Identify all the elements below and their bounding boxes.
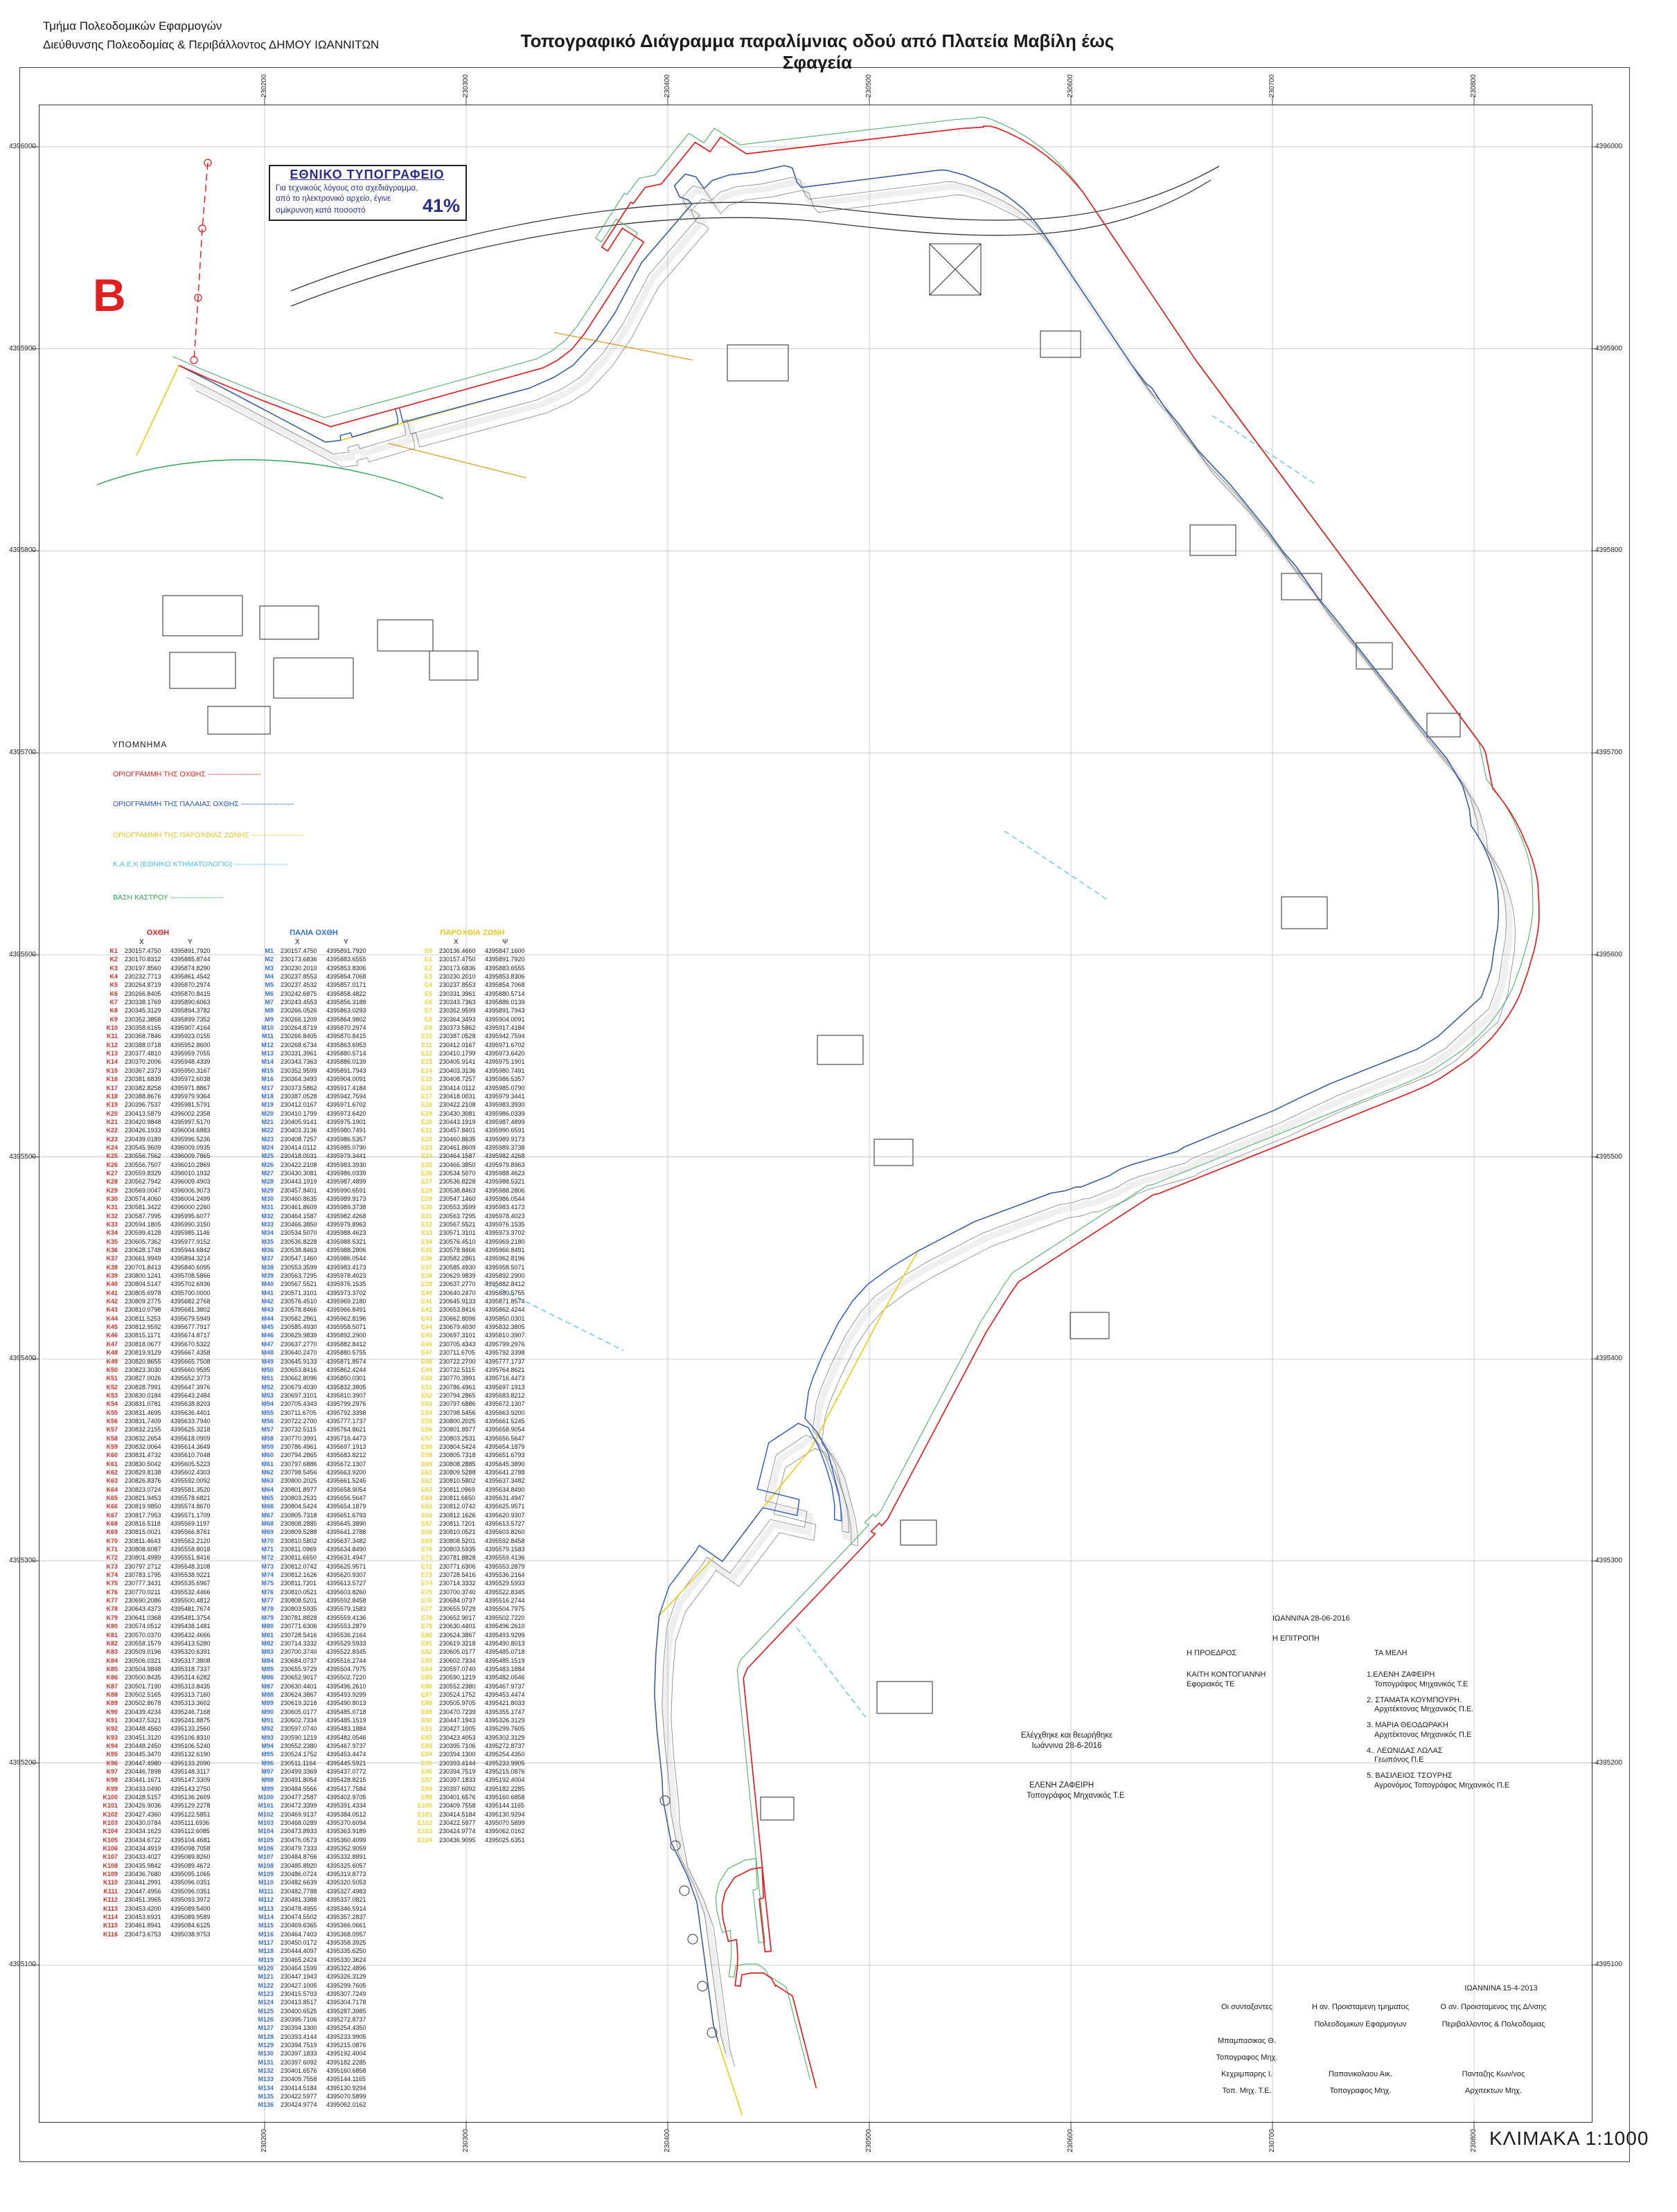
point-x: 230786.4961 [439,1383,482,1391]
point-x: 230571.3101 [439,1229,482,1237]
point-id: M37 [255,1254,274,1263]
table-row: M21230405.91414395975.1901 [255,1118,380,1126]
table-row: Ε78230652.90174395502.7220 [414,1614,538,1622]
point-id: Ε85 [414,1673,432,1682]
point-y: 4395254.4350 [485,1750,531,1758]
table-row: M107230484.87664395332.8891 [255,1853,380,1861]
reduction-note-title: ΕΘΝΙΚΟ ΤΥΠΟΓΡΑΦΕΙΟ [276,168,459,182]
point-x: 230430.3081 [439,1109,482,1118]
point-y: 4395625.9571 [485,1502,531,1510]
point-x: 230816.5118 [125,1519,168,1528]
table-row: Ε10230387.05284395942.7594 [414,1032,538,1040]
table-row: K38230701.84134395840.6095 [99,1263,224,1272]
table-row: K31230581.34224396000.2260 [99,1203,224,1211]
point-x: 230643.4373 [125,1605,168,1613]
point-y: 4395890.6063 [170,998,216,1006]
point-x: 230728.5416 [281,1631,323,1639]
table-row: Ε17230418.00314395979.3441 [414,1092,538,1100]
point-x: 230804.5424 [439,1443,482,1451]
axis-tick-label-bottom: 230500 [865,2120,873,2161]
point-id: M39 [255,1272,274,1280]
legend-item: ΒΑΣΗ ΚΑΣΤΡΟΥ ---------------------- [113,893,223,902]
point-x: 230506.0321 [125,1657,168,1665]
point-y: 4395096.0351 [170,1878,216,1887]
table-row: M14230343.73634395886.0139 [255,1058,380,1066]
point-x: 230602.7334 [281,1716,323,1724]
point-x: 230331.3961 [281,1049,323,1058]
point-x: 230827.0026 [125,1374,168,1382]
point-id: M77 [255,1596,274,1605]
table-row: M62230798.54564395663.9200 [255,1468,380,1477]
point-x: 230641.0368 [125,1614,168,1622]
point-x: 230826.8376 [125,1477,168,1485]
table-row: K79230641.03684395481.3754 [99,1614,224,1622]
point-y: 4395985.0790 [485,1084,531,1092]
point-id: M14 [255,1058,274,1066]
point-y: 4395504.7975 [485,1605,531,1613]
table-row: Ε77230655.97294395504.7975 [414,1605,538,1613]
table-row: K86230500.84354395314.6282 [99,1673,224,1682]
point-y: 4395995.6077 [170,1212,216,1220]
point-y: 4395950.3167 [170,1067,216,1075]
table-row: M92230597.07404395483.1884 [255,1724,380,1733]
point-y: 4395862.4244 [485,1305,531,1314]
table-row: Ε39230637.27704395882.8412 [414,1280,538,1288]
point-id: K33 [99,1220,118,1229]
table-row: Ε94230394.13004395254.4350 [414,1750,538,1758]
point-y: 4395856.3188 [326,998,372,1006]
point-y: 4395861.4542 [170,972,216,981]
table-row: Ε19230430.30814395986.0339 [414,1109,538,1118]
axis-tick-label-left: 4395400 [1,1355,36,1362]
legend-line-sample: ---------------------- [249,831,305,839]
legend-title: ΥΠΟΜΝΗΜΑ [112,740,167,749]
point-id: M63 [255,1477,274,1485]
table-row: M123230415.57034395307.7249 [255,1990,380,1998]
axis-tick-label-top: 230600 [1067,65,1075,107]
table-row: M44230582.28614395962.8196 [255,1314,380,1323]
point-y: 4395880.5755 [326,1348,372,1357]
point-y: 4395663.9200 [485,1409,531,1417]
point-x: 230811.7201 [439,1519,482,1528]
table-row: K4230232.77134395861.4542 [99,972,224,981]
point-id: K58 [99,1434,118,1443]
table-row: Ε103230424.97744395062.0162 [414,1827,538,1835]
point-id: M118 [255,1947,274,1955]
point-x: 230422.5977 [439,1819,482,1827]
point-id: M92 [255,1724,274,1733]
point-id: M34 [255,1229,274,1237]
point-id: Ε43 [414,1314,432,1323]
point-id: Ε48 [414,1357,432,1366]
point-id: M99 [255,1785,274,1793]
point-x: 230474.5502 [281,1913,323,1921]
point-x: 230331.3961 [439,990,482,998]
point-y: 4395233.9905 [326,2033,372,2041]
point-y: 4395979.8963 [485,1161,531,1169]
table-row: M112230481.33884395337.0821 [255,1896,380,1904]
point-x: 230422.5977 [281,2092,323,2100]
point-y: 4395538.9221 [170,1571,216,1579]
table-row: Ε79230630.44014395496.2610 [414,1622,538,1630]
point-id: M36 [255,1246,274,1254]
point-x: 230414.5184 [281,2084,323,2092]
point-x: 230590.1219 [281,1733,323,1742]
table-row: M37230547.14604395986.0544 [255,1254,380,1263]
point-x: 230266.0526 [281,1006,323,1015]
point-y: 4395485.0718 [326,1708,372,1716]
point-y: 4395891.7920 [170,947,216,955]
point-x: 230427.1005 [439,1724,482,1733]
table-row: K43230810.07984395681.3802 [99,1305,224,1314]
point-id: Ε71 [414,1553,432,1562]
point-y: 4396006.9073 [170,1186,216,1195]
point-y: 4395093.3972 [170,1896,216,1904]
point-x: 230770.0211 [125,1588,168,1596]
point-x: 230547.1460 [281,1254,323,1263]
point-id: K30 [99,1195,118,1203]
point-id: K104 [99,1827,118,1835]
point-x: 230426.9036 [125,1801,168,1810]
point-y: 4395987.4899 [485,1118,531,1126]
point-x: 230232.7713 [125,972,168,981]
point-y: 4395625.9571 [326,1562,372,1571]
table-row: M12230268.67344395863.6953 [255,1041,380,1049]
table-row: Ε65230812.07424395625.9571 [414,1502,538,1510]
point-y: 4395357.2837 [326,1913,372,1921]
point-y: 4395631.4947 [326,1553,372,1562]
point-id: Ε75 [414,1588,432,1596]
point-id: Ε41 [414,1297,432,1305]
table-row: Ε83230602.73344395485.1519 [414,1657,538,1665]
table-row: K41230805.69784395700.0000 [99,1289,224,1297]
table-row: M75230811.72014395613.5727 [255,1579,380,1587]
point-id: M101 [255,1801,274,1810]
point-id: Ε62 [414,1477,432,1485]
point-y: 4395318.7337 [170,1665,216,1673]
point-x: 230830.5042 [125,1460,168,1468]
point-x: 230430.3081 [281,1169,323,1177]
point-x: 230812.1626 [281,1571,323,1579]
point-x: 230395.7106 [281,2015,323,2024]
point-y: 4395438.1481 [170,1622,216,1630]
point-y: 4395663.9200 [326,1468,372,1477]
point-y: 4396009.4903 [170,1177,216,1186]
table-row: M30230460.86354395989.9173 [255,1195,380,1203]
point-id: Ε25 [414,1161,432,1169]
reduction-note-line3: σμίκρυνση κατά ποσοστό [276,206,365,215]
point-y: 4395652.3773 [170,1374,216,1382]
point-y: 4395989.3738 [326,1203,372,1211]
point-y: 4395493.9299 [485,1631,531,1639]
point-id: Ε93 [414,1742,432,1750]
point-id: M9 [255,1015,274,1024]
point-id: K101 [99,1801,118,1810]
point-y: 4395894.3214 [170,1254,216,1263]
table-x-header: X [139,938,144,946]
point-y: 4395716.4473 [326,1434,372,1443]
axis-tick-label-right: 4395200 [1595,1759,1637,1767]
table-row: M26230422.21084395983.3930 [255,1161,380,1169]
table-row: K34230599.41284395985.1146 [99,1229,224,1237]
point-id: M32 [255,1212,274,1220]
point-id: K62 [99,1468,118,1477]
point-y: 4395133.2560 [170,1724,216,1733]
point-x: 230534.5070 [439,1169,482,1177]
point-id: Ε31 [414,1212,432,1220]
table-row: M31230461.86094395989.3738 [255,1203,380,1211]
table-row: Ε6230343.73634395886.0139 [414,998,538,1006]
table-row: Ε54230798.54564395663.9200 [414,1409,538,1417]
point-id: K65 [99,1494,118,1502]
point-y: 4395360.4099 [326,1836,372,1844]
point-x: 230810.5802 [439,1477,482,1485]
point-id: M29 [255,1186,274,1195]
point-x: 230645.9133 [439,1297,482,1305]
point-id: M43 [255,1305,274,1314]
point-x: 230803.2531 [439,1434,482,1443]
point-x: 230590.1219 [439,1673,482,1682]
point-x: 230485.8920 [281,1862,323,1870]
point-y: 4395384.0512 [326,1810,372,1819]
table-row: M22230403.31364395980.7491 [255,1126,380,1134]
table-row: K89230502.86784395313.3602 [99,1699,224,1707]
point-y: 4395959.7055 [170,1049,216,1058]
point-id: Ε47 [414,1348,432,1357]
point-y: 4395969.2180 [326,1297,372,1305]
point-x: 230457.8401 [281,1186,323,1195]
point-y: 4395571.1709 [170,1511,216,1519]
point-id: Ε1 [414,955,432,963]
point-y: 4395070.5899 [326,2092,372,2100]
point-x: 230559.8329 [125,1169,168,1177]
table-row: M98230491.80544395428.8215 [255,1776,380,1784]
legend-item-label: ΟΡΙΟΓΡΑΜΜΗ ΤΗΣ ΠΑΛΑΙΑΣ ΟΧΘΗΣ [113,800,239,808]
point-id: K95 [99,1750,118,1758]
point-id: Ε37 [414,1263,432,1272]
table-row: K3230197.85604395874.8290 [99,964,224,972]
point-id: Ε5 [414,990,432,998]
table-row: M96230511.11644395445.5921 [255,1759,380,1767]
point-y: 4395602.4303 [170,1468,216,1477]
axis-tick-label-bottom: 230600 [1067,2120,1075,2161]
table-row: M35230536.82284395988.5321 [255,1238,380,1246]
point-y: 4395874.8290 [170,964,216,972]
point-id: M51 [255,1374,274,1382]
point-id: M25 [255,1152,274,1160]
point-id: K13 [99,1049,118,1058]
table-row: M60230794.28654395683.8212 [255,1451,380,1459]
table-row: M129230394.75194395215.0876 [255,2041,380,2049]
axis-tick-label-left: 4395800 [1,546,36,554]
point-y: 4395417.7584 [326,1785,372,1793]
table-row: Ε74230714.33324395529.5933 [414,1579,538,1587]
table-row: K103230430.07844395111.6936 [99,1819,224,1827]
point-y: 4395319.8773 [326,1870,372,1878]
point-x: 230800.1241 [125,1272,168,1280]
table-row: Ε31230563.72954395978.4023 [414,1212,538,1220]
table-row: M4230237.85534395854.7068 [255,972,380,981]
point-x: 230466.3850 [439,1161,482,1169]
point-y: 4395317.3808 [170,1657,216,1665]
signoff-column-header: Ο αν. Προισταμενος της Δ/νσης [1403,2003,1583,2011]
point-x: 230436.9095 [439,1836,482,1844]
point-x: 230472.3399 [281,1801,323,1810]
table-row: M50230653.84164395862.4244 [255,1366,380,1374]
table-row: M8230266.05264395863.0293 [255,1006,380,1015]
point-x: 230481.3388 [281,1896,323,1904]
table-row: M78230803.59354395579.1583 [255,1605,380,1613]
table-row: M10230264.87194395870.2974 [255,1024,380,1032]
point-y: 4395553.2879 [326,1622,372,1630]
table-row: M100230477.25874395402.9705 [255,1793,380,1801]
table-row: Ε11230412.01674395971.6702 [414,1041,538,1049]
point-y: 4395886.0139 [326,1058,372,1066]
point-x: 230243.4553 [281,998,323,1006]
point-y: 4395660.9595 [170,1366,216,1374]
point-id: M60 [255,1451,274,1459]
point-x: 230505.9705 [439,1699,482,1707]
point-y: 4395942.7594 [326,1092,372,1100]
table-row: K8230345.31294395894.3782 [99,1006,224,1015]
point-y: 4395313.3602 [170,1699,216,1707]
point-y: 4395482.0546 [326,1733,372,1742]
point-id: K56 [99,1417,118,1425]
table-row: K20230413.58794396002.2358 [99,1109,224,1118]
legend-item-label: ΟΡΙΟΓΡΑΜΜΗ ΤΗΣ ΠΑΡΟΧΘΙΑΣ ΖΩΝΗΣ [113,831,249,839]
point-x: 230408.7257 [281,1135,323,1143]
table-row: K10230358.61654395907.4164 [99,1024,224,1032]
point-y: 4396010.1932 [170,1169,216,1177]
table-row: K15230367.23734395950.3167 [99,1067,224,1075]
point-x: 230711.6705 [439,1348,482,1357]
point-id: K44 [99,1314,118,1323]
point-x: 230831.4695 [125,1409,168,1417]
point-id: M49 [255,1357,274,1366]
point-id: K54 [99,1400,118,1408]
point-x: 230800.2025 [281,1477,323,1485]
point-x: 230624.3867 [281,1691,323,1699]
point-x: 230264.8719 [281,1024,323,1032]
point-x: 230800.2025 [439,1417,482,1425]
point-y: 4395330.3624 [326,1956,372,1964]
point-id: M110 [255,1878,274,1887]
point-x: 230266.8405 [125,990,168,998]
point-id: M93 [255,1733,274,1742]
point-x: 230446.7898 [125,1767,168,1776]
point-x: 230585.4930 [281,1323,323,1331]
point-y: 4395592.8458 [326,1596,372,1605]
point-x: 230450.0172 [281,1938,323,1947]
table-row: K40230804.51474395702.6936 [99,1280,224,1288]
point-id: M113 [255,1905,274,1913]
table-row: K22230426.19334396004.6883 [99,1126,224,1134]
point-id: K50 [99,1366,118,1374]
point-y: 4395654.1879 [326,1502,372,1510]
point-id: M114 [255,1913,274,1921]
table-row: Ε75230700.37404395522.8345 [414,1588,538,1596]
axis-tick-label-right: 4395700 [1595,749,1637,756]
table-row: Ε46230705.43434395799.2976 [414,1340,538,1348]
axis-tick-label-right: 4395800 [1595,546,1637,554]
point-id: Ε60 [414,1460,432,1468]
point-x: 230817.7953 [125,1511,168,1519]
table-row: M72230811.66504395631.4947 [255,1553,380,1562]
table-row: K56230831.74094395633.7940 [99,1417,224,1425]
point-id: Ε91 [414,1724,432,1733]
point-id: Ε2 [414,964,432,972]
point-id: M98 [255,1776,274,1784]
point-id: K88 [99,1691,118,1699]
table-row: K112230451.39654395093.3972 [99,1896,224,1904]
table-row: M34230534.50704395988.4623 [255,1229,380,1237]
table-row: K23230439.01894395996.5236 [99,1135,224,1143]
point-y: 4395536.2164 [326,1631,372,1639]
point-x: 230808.6087 [125,1545,168,1553]
table-row: K14230370.20064395948.4339 [99,1058,224,1066]
table-row: M64230801.89774395658.9054 [255,1486,380,1494]
point-y: 4395483.1884 [485,1665,531,1673]
point-id: K115 [99,1921,118,1929]
point-y: 4395636.4401 [170,1409,216,1417]
point-id: M12 [255,1041,274,1049]
table-row: M134230414.51844395130.9294 [255,2084,380,2092]
table-row: Ε47230711.67054395792.3398 [414,1348,538,1357]
point-x: 230705.4343 [439,1340,482,1348]
legend-item: Κ.Α.Ε.Κ (ΕΘΝΙΚΟ ΚΤΗΜΑΤΟΛΟΓΙΟ) ----------… [113,860,287,868]
point-x: 230422.2108 [439,1100,482,1109]
point-y: 4395958.5071 [326,1323,372,1331]
point-x: 230426.1933 [125,1126,168,1134]
point-x: 230409.7558 [281,2075,323,2083]
table-row: K36230628.17484395944.6842 [99,1246,224,1254]
point-y: 4395147.3309 [170,1776,216,1784]
point-id: K39 [99,1272,118,1280]
table-row: M104230473.89334395363.9189 [255,1827,380,1835]
point-id: K69 [99,1528,118,1536]
table-row: Ε97230397.18334395192.4004 [414,1776,538,1784]
point-x: 230804.5424 [281,1502,323,1510]
point-id: Ε20 [414,1118,432,1126]
table-row: Ε102230422.59774395070.5899 [414,1819,538,1827]
table-row: K13230377.48104395959.7055 [99,1049,224,1058]
table-row: M115230469.63654395366.0661 [255,1921,380,1929]
point-y: 4395871.8574 [485,1297,531,1305]
table-row: M90230605.01774395485.0718 [255,1708,380,1716]
point-id: K107 [99,1853,118,1861]
point-x: 230536.8228 [439,1177,482,1186]
table-row: M6230242.68754395858.4822 [255,990,380,998]
table-row: M94230552.23804395467.9737 [255,1742,380,1750]
checked-line2: Ιωάννινα 28-6-2016 [997,1742,1136,1750]
table-row: M45230585.49304395958.5071 [255,1323,380,1331]
table-row: K75230777.34314395535.6967 [99,1579,224,1587]
table-row: M67230805.73184395651.6793 [255,1511,380,1519]
point-y: 4395562.2120 [170,1537,216,1545]
point-x: 230464.7403 [281,1930,323,1938]
point-y: 4395980.7491 [485,1067,531,1075]
point-id: M11 [255,1032,274,1040]
point-id: M119 [255,1956,274,1964]
point-x: 230811.7201 [281,1579,323,1587]
point-y: 4395904.0091 [485,1015,531,1024]
point-x: 230500.8435 [125,1673,168,1682]
point-y: 4395551.8416 [170,1553,216,1562]
point-id: M69 [255,1528,274,1536]
point-x: 230364.3493 [281,1075,323,1083]
point-x: 230412.0167 [439,1041,482,1049]
point-id: Ε102 [414,1819,432,1827]
